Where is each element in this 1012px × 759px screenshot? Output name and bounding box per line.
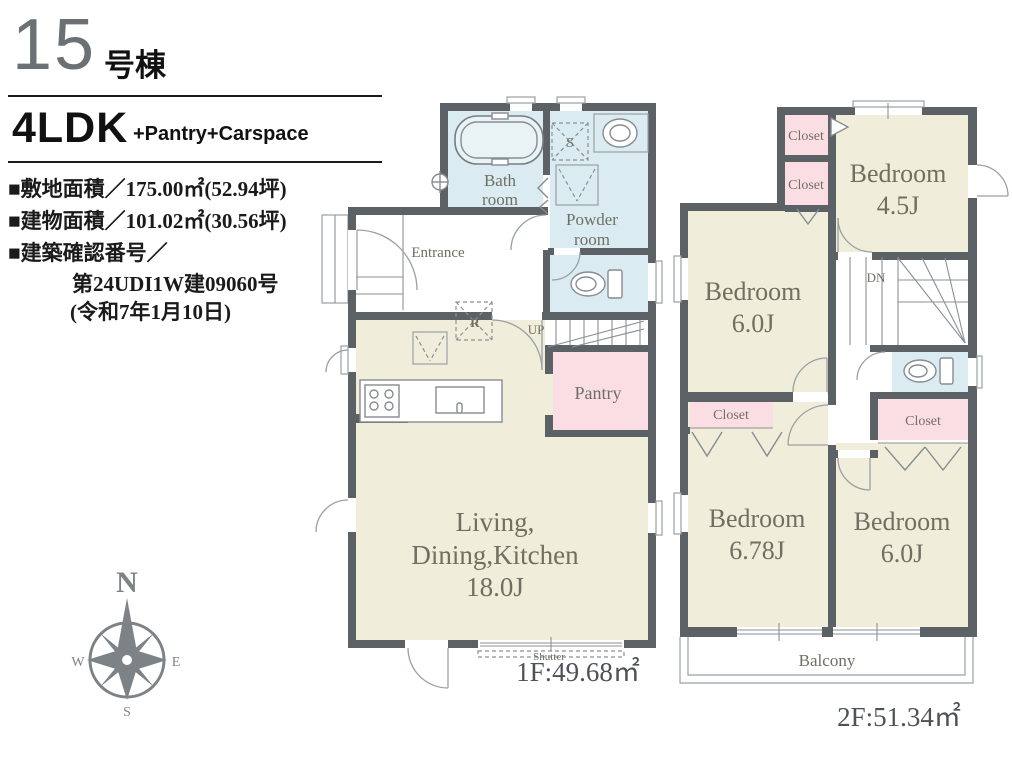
spec-permit-title: ■建築確認番号／ xyxy=(8,237,168,267)
toilet-icon-2f xyxy=(904,358,953,384)
spec-building-area: ■建物面積／101.02㎡(30.56坪) xyxy=(8,205,287,235)
ldk-label-line1: Living, xyxy=(456,507,535,537)
compass-north-label: N xyxy=(116,566,138,599)
closet-label-1: Closet xyxy=(788,129,824,144)
closet-label-4: Closet xyxy=(905,414,941,429)
bedroom4-label: Bedroom xyxy=(854,507,951,536)
kitchen-counter xyxy=(360,380,502,422)
bedroom1-size: 4.5J xyxy=(877,191,920,220)
compass-east-label: E xyxy=(172,655,181,670)
floor1-area-label: 1F:49.68㎡ xyxy=(516,657,640,687)
pantry-label: Pantry xyxy=(575,383,622,403)
bedroom3-label: Bedroom xyxy=(709,504,806,533)
ldk-size-label: 18.0J xyxy=(466,572,524,602)
bathroom-label-line2: room xyxy=(482,190,518,209)
spec-permit-date: (令和7年1月10日) xyxy=(70,296,231,326)
compass-south-label: S xyxy=(123,705,131,720)
bedroom2-size: 6.0J xyxy=(732,309,775,338)
spec-site-area: ■敷地面積／175.00㎡(52.94坪) xyxy=(8,173,287,203)
bedroom4-size: 6.0J xyxy=(881,539,924,568)
laundry-label: S xyxy=(566,136,574,151)
entrance-label: Entrance xyxy=(411,245,465,261)
refrigerator-label: R xyxy=(470,315,480,330)
floor2-area-label: 2F:51.34㎡ xyxy=(837,702,961,732)
bedroom2-label: Bedroom xyxy=(705,277,802,306)
compass-west-label: W xyxy=(71,655,85,670)
balcony-label: Balcony xyxy=(799,651,856,670)
stairs-up-label: UP xyxy=(528,322,545,337)
plan-extra: +Pantry+Carspace xyxy=(133,123,309,146)
floor-plan-1f: Bath room S Powder room Entrance UP R Pa… xyxy=(315,95,670,705)
bathroom-label-line1: Bath xyxy=(484,171,517,190)
closet-label-2: Closet xyxy=(788,178,824,193)
stairs-dn-label: DN xyxy=(867,270,886,285)
unit-number-suffix: 号棟 xyxy=(104,40,166,85)
floor-plan-sheet: 15 号棟 4LDK +Pantry+Carspace ■敷地面積／175.00… xyxy=(0,0,1012,759)
powder-room-label-line1: Powder xyxy=(566,210,618,229)
compass-rose: N W E S xyxy=(50,553,210,735)
spec-permit-number: 第24UDI1W建09060号 xyxy=(72,268,279,298)
bedroom3-size: 6.78J xyxy=(729,536,785,565)
toilet-icon-1f xyxy=(571,270,622,298)
floor-plan-2f: Closet Closet Bedroom 4.5J Bedroom 6.0J … xyxy=(670,100,1012,745)
ldk-label-line2: Dining,Kitchen xyxy=(411,540,579,570)
plan-type: 4LDK xyxy=(12,104,128,153)
entrance-porch xyxy=(322,215,403,310)
powder-room-label-line2: room xyxy=(574,230,610,249)
bedroom1-label: Bedroom xyxy=(850,159,947,188)
compass-star-icon xyxy=(87,598,167,700)
unit-number: 15 xyxy=(12,4,96,86)
closet-label-3: Closet xyxy=(713,408,749,423)
bathtub-icon xyxy=(455,113,543,165)
